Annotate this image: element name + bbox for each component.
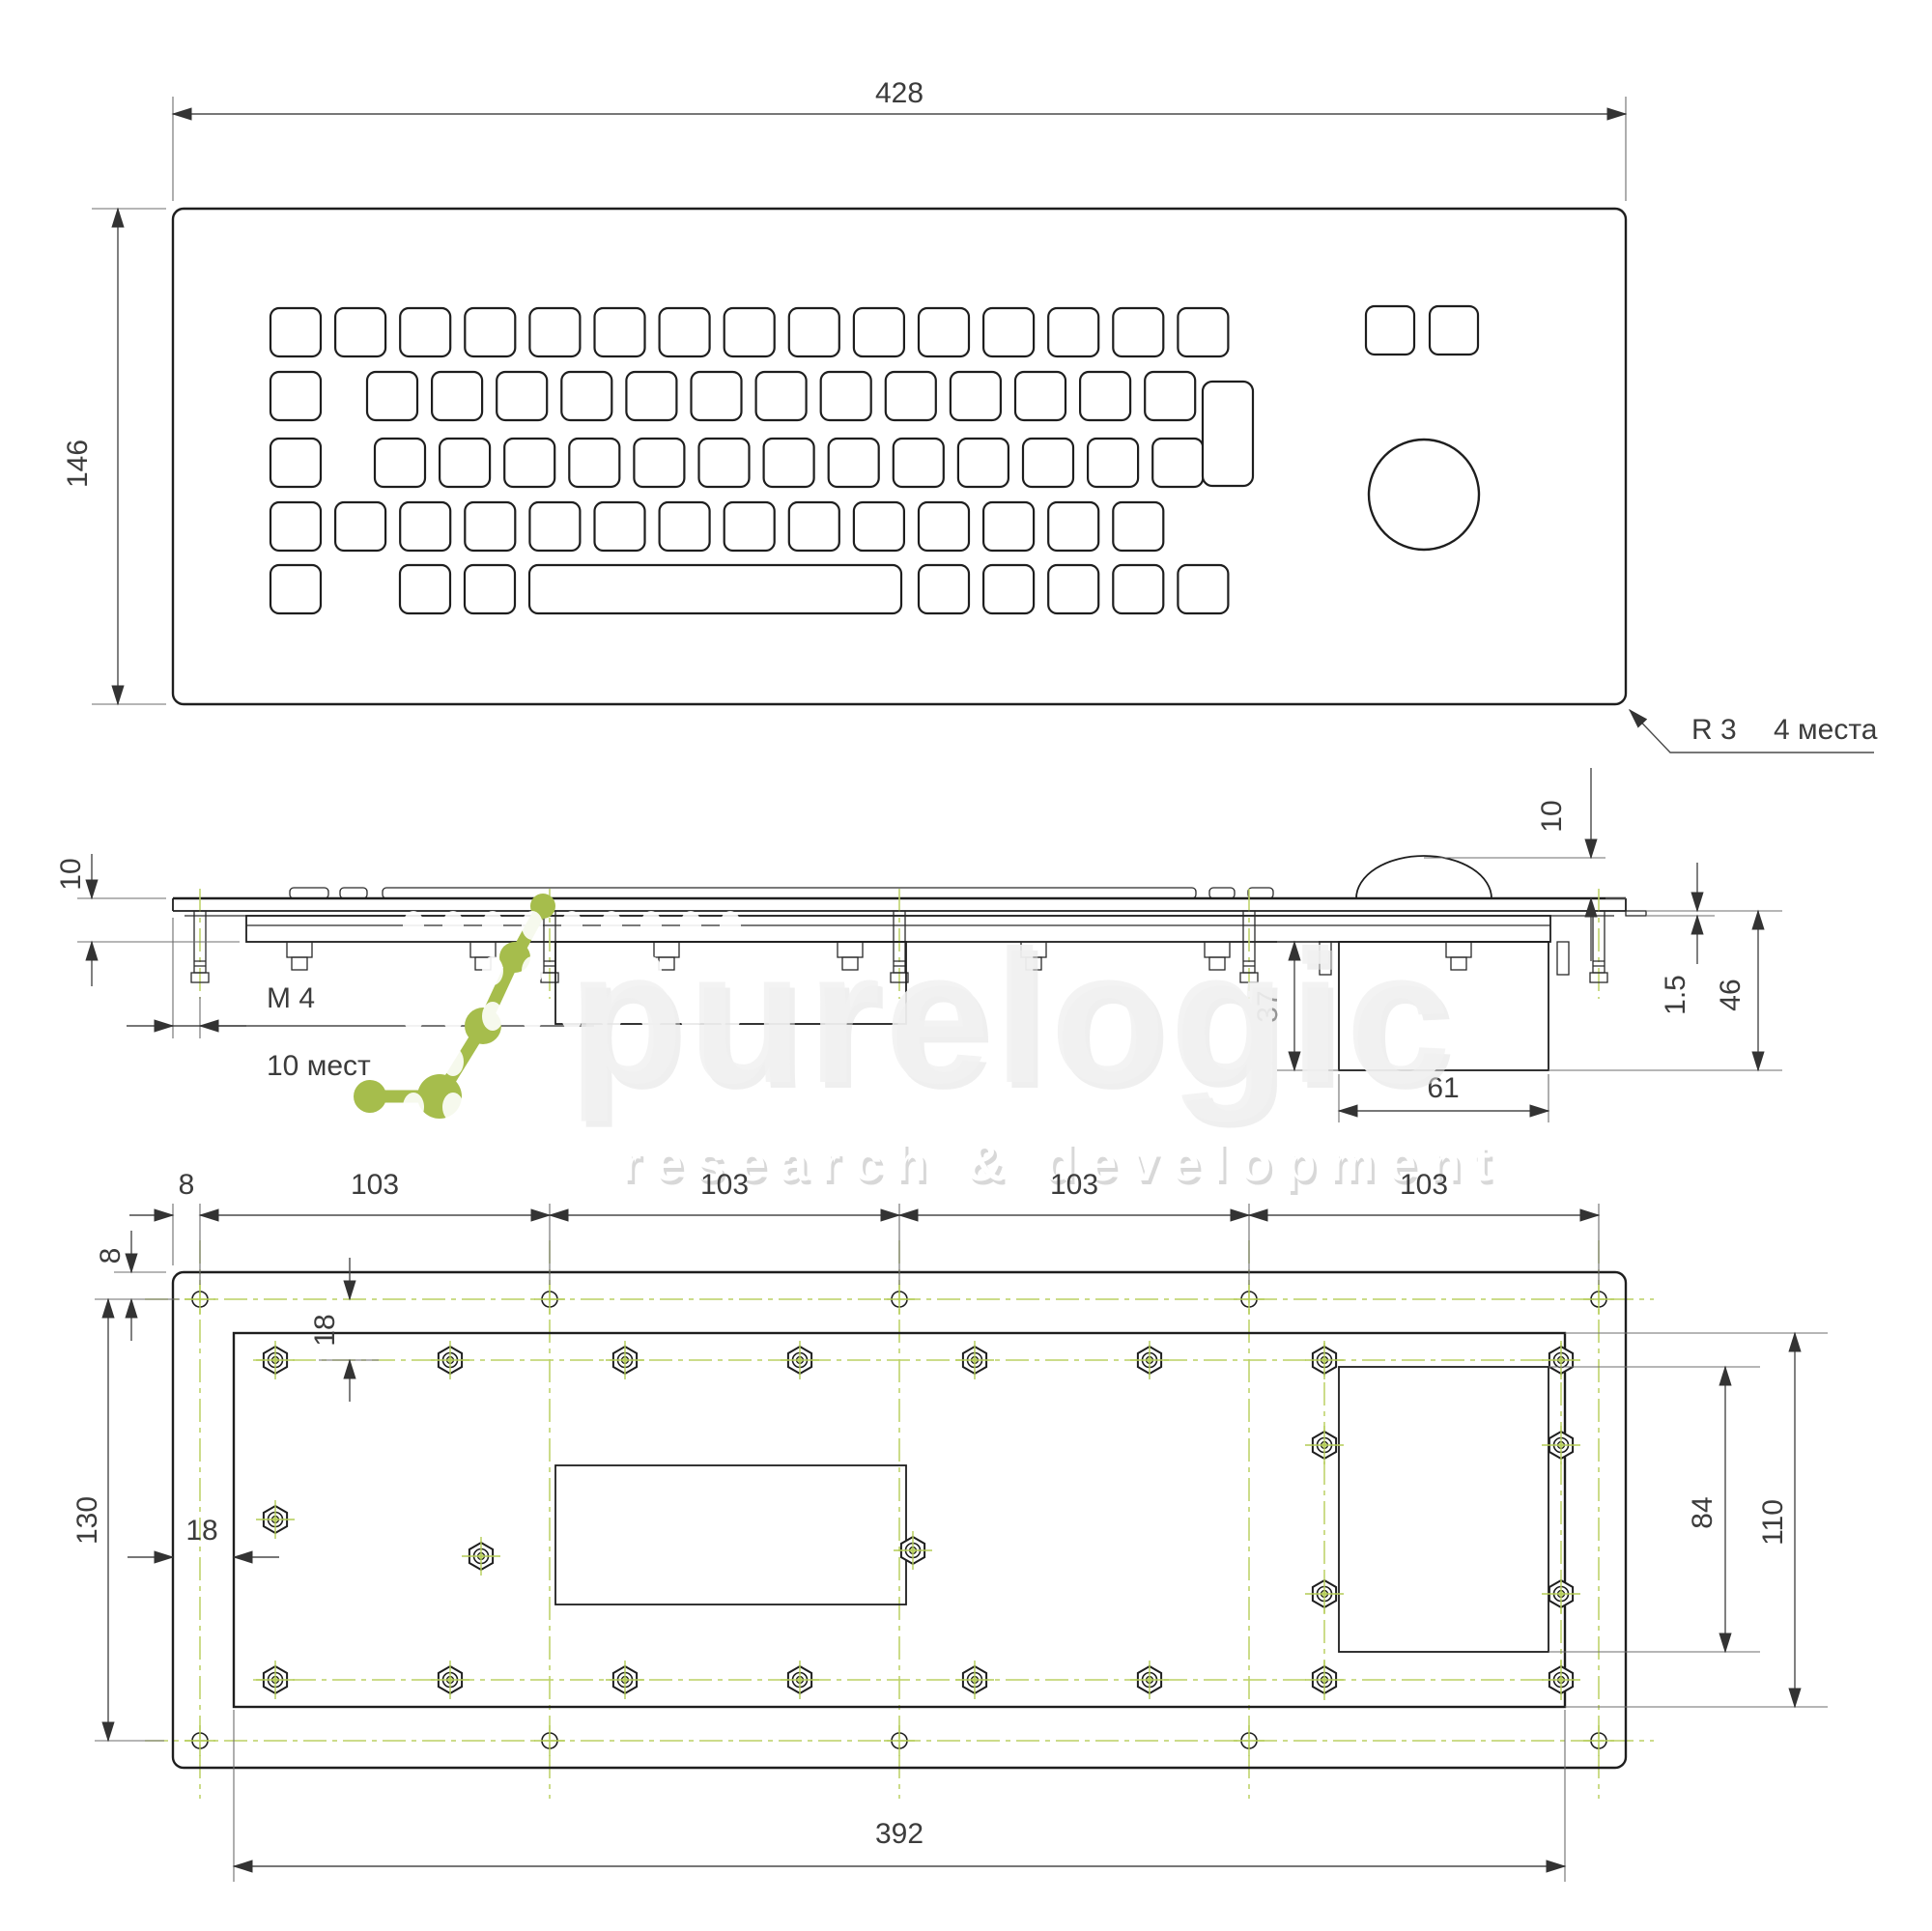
key [854,502,904,551]
key [951,372,1001,420]
key [894,439,944,487]
corner-radius-label: R 3 [1691,714,1737,746]
key [724,308,775,356]
key [367,372,417,420]
key [1088,439,1138,487]
side-plate-lip [1626,911,1646,916]
nut-crosshair [606,1341,644,1379]
mouse-button-right [1430,306,1478,355]
key [724,502,775,551]
key-grid [270,308,1228,613]
dim-hole-rows-130: 130 [71,1299,164,1741]
key [440,439,490,487]
nut-crosshair [1130,1661,1169,1699]
corner-places-label: 4 места [1774,714,1878,746]
key [789,308,839,356]
nut-crosshair [781,1341,819,1379]
key [504,439,554,487]
key [561,372,611,420]
total-depth-label: 46 [1715,979,1747,1010]
hole-rows-distance-label: 130 [71,1496,103,1545]
nut-crosshair [256,1341,295,1379]
nut-crosshair [1130,1341,1169,1379]
dim-edge-offset-left: 8 [95,1231,180,1341]
key [270,372,321,420]
back-trackball-cutout [1339,1367,1548,1652]
hole-crosshair [884,1725,915,1756]
key [764,439,814,487]
key [270,565,321,613]
nut-crosshair [781,1661,819,1699]
halftone-dot [561,1138,582,1167]
nut-crosshair [1305,1341,1344,1379]
halftone-dot [522,956,543,985]
side-key-profiles [290,888,1273,898]
nut-crosshair [256,1500,295,1539]
key [1080,372,1130,420]
nut-crosshair [1305,1575,1344,1613]
hole-crosshair [1583,1284,1614,1315]
key [400,308,450,356]
key [569,439,619,487]
thread-places-label: 10 мест [267,1050,371,1082]
key [335,502,385,551]
nut-crosshair [431,1661,469,1699]
cutout-height-label: 84 [1687,1496,1719,1528]
back-screw-nuts [256,1341,1580,1699]
nut-crosshair [955,1341,994,1379]
halftone-dot [522,1047,543,1076]
screw-tip [292,957,307,970]
key [660,308,710,356]
hole-pitch-label-3: 103 [1050,1169,1098,1201]
hole-crosshair [1234,1284,1264,1315]
hole-pitch-label-4: 103 [1400,1169,1448,1201]
halftone-dot [403,956,424,985]
halftone-dot [403,1093,424,1122]
hole-crosshair [1234,1725,1264,1756]
key [660,502,710,551]
key [789,502,839,551]
hole-crosshair [534,1725,565,1756]
key [919,565,969,613]
edge-offset-top-label: 8 [179,1169,195,1201]
key [335,308,385,356]
hole-crosshair [534,1284,565,1315]
key [854,308,904,356]
halftone-dot [482,1047,503,1076]
hole-crosshair [1583,1725,1614,1756]
front-width-label: 428 [875,77,923,109]
key [465,502,515,551]
hole-pitch-label-2: 103 [700,1169,749,1201]
key [595,308,645,356]
key [1178,308,1228,356]
key [1113,502,1163,551]
halftone-dot [442,1047,464,1076]
key [270,439,321,487]
back-controller-cutout [555,1465,906,1604]
sheet-thickness-label: 1.5 [1660,975,1691,1015]
hole-crosshair [185,1284,215,1315]
key [919,308,969,356]
nut-crosshair [955,1661,994,1699]
halftone-dot [403,1138,424,1167]
hole-crosshair [185,1725,215,1756]
halftone-dot [482,1138,503,1167]
halftone-dot [442,956,464,985]
key [529,502,580,551]
plate-height-label: 110 [1757,1499,1789,1546]
halftone-dot [482,1093,503,1122]
halftone-dot [482,956,503,985]
key [1015,372,1065,420]
edge-offset-left-label: 8 [95,1248,127,1264]
dim-plate-inset-18: 18 [128,1515,279,1557]
key [1113,565,1163,613]
key [270,502,321,551]
dim-height-146: 146 [62,209,166,704]
trackball [1369,440,1479,550]
trackball-dome-profile [1356,856,1492,898]
dim-stack-10: 10 [55,854,240,986]
nut-crosshair [1542,1575,1580,1613]
nut-crosshair [1542,1341,1580,1379]
screw-row-offset-label: 18 [309,1314,341,1346]
nut-crosshair [606,1661,644,1699]
key [375,439,425,487]
halftone-dot [442,1002,464,1031]
nut-crosshair [1305,1661,1344,1699]
key [1152,439,1203,487]
plate-inset-label: 18 [185,1515,217,1547]
logo-chain-dot [354,1080,386,1113]
halftone-dot [442,1093,464,1122]
key [983,565,1034,613]
enter-key [1203,382,1253,486]
key [1048,308,1098,356]
key [1023,439,1073,487]
hole-crosshair [884,1284,915,1315]
halftone-dot [442,1138,464,1167]
key [432,372,482,420]
key [595,502,645,551]
key [1048,502,1098,551]
screw-head [287,942,312,957]
corner-radius-note: R 3 4 места [1630,710,1878,753]
halftone-dot [442,911,464,940]
key [1178,565,1228,613]
dim-screw-row-18: 18 [309,1258,379,1402]
key [465,308,515,356]
key [1113,308,1163,356]
back-centerlines [145,1240,1654,1799]
halftone-dot [482,911,503,940]
dome-height-label: 10 [1536,800,1568,832]
halftone-dot [403,911,424,940]
nut-crosshair [462,1537,500,1576]
key [692,372,742,420]
key [756,372,807,420]
key [958,439,1009,487]
front-view: 428 146 R 3 4 места [62,77,1878,753]
halftone-dot [601,1138,622,1167]
nut-crosshair [1305,1426,1344,1464]
spacebar-key [529,565,901,613]
watermark: purelogic purelogic research & developme… [354,894,1506,1196]
key [983,502,1034,551]
key [829,439,879,487]
nut-crosshair [256,1661,295,1699]
halftone-dot [522,1138,543,1167]
halftone-dot [522,1093,543,1122]
key [626,372,676,420]
halftone-dot [403,1047,424,1076]
key [529,308,580,356]
key [983,308,1034,356]
front-height-label: 146 [62,440,94,488]
key [1048,565,1098,613]
side-stack-height-label: 10 [55,858,87,890]
key [400,502,450,551]
key [497,372,547,420]
halftone-dot [522,911,543,940]
key [886,372,936,420]
plate-width-label: 392 [875,1818,923,1850]
nut-crosshair [431,1341,469,1379]
mouse-button-left [1366,306,1414,355]
dim-width-428: 428 [173,77,1626,201]
back-view: 8 103 103 103 103 8 130 18 [71,1169,1828,1882]
halftone-dot [482,1002,503,1031]
key [465,565,515,613]
keyboard-technical-drawing: 428 146 R 3 4 места [0,0,1932,1931]
key [821,372,871,420]
screw-head [470,942,496,957]
dim-cutout-84: 84 [1548,1367,1760,1652]
key [1145,372,1195,420]
halftone-dot [403,1002,424,1031]
key [400,565,450,613]
hole-pitch-label-1: 103 [351,1169,399,1201]
key [270,308,321,356]
watermark-brand: purelogic [568,911,1455,1122]
halftone-dot [522,1002,543,1031]
thread-label: M 4 [267,982,315,1014]
key [634,439,684,487]
nut-crosshair [1542,1661,1580,1699]
key [699,439,750,487]
key [919,502,969,551]
nut-crosshair [1542,1426,1580,1464]
